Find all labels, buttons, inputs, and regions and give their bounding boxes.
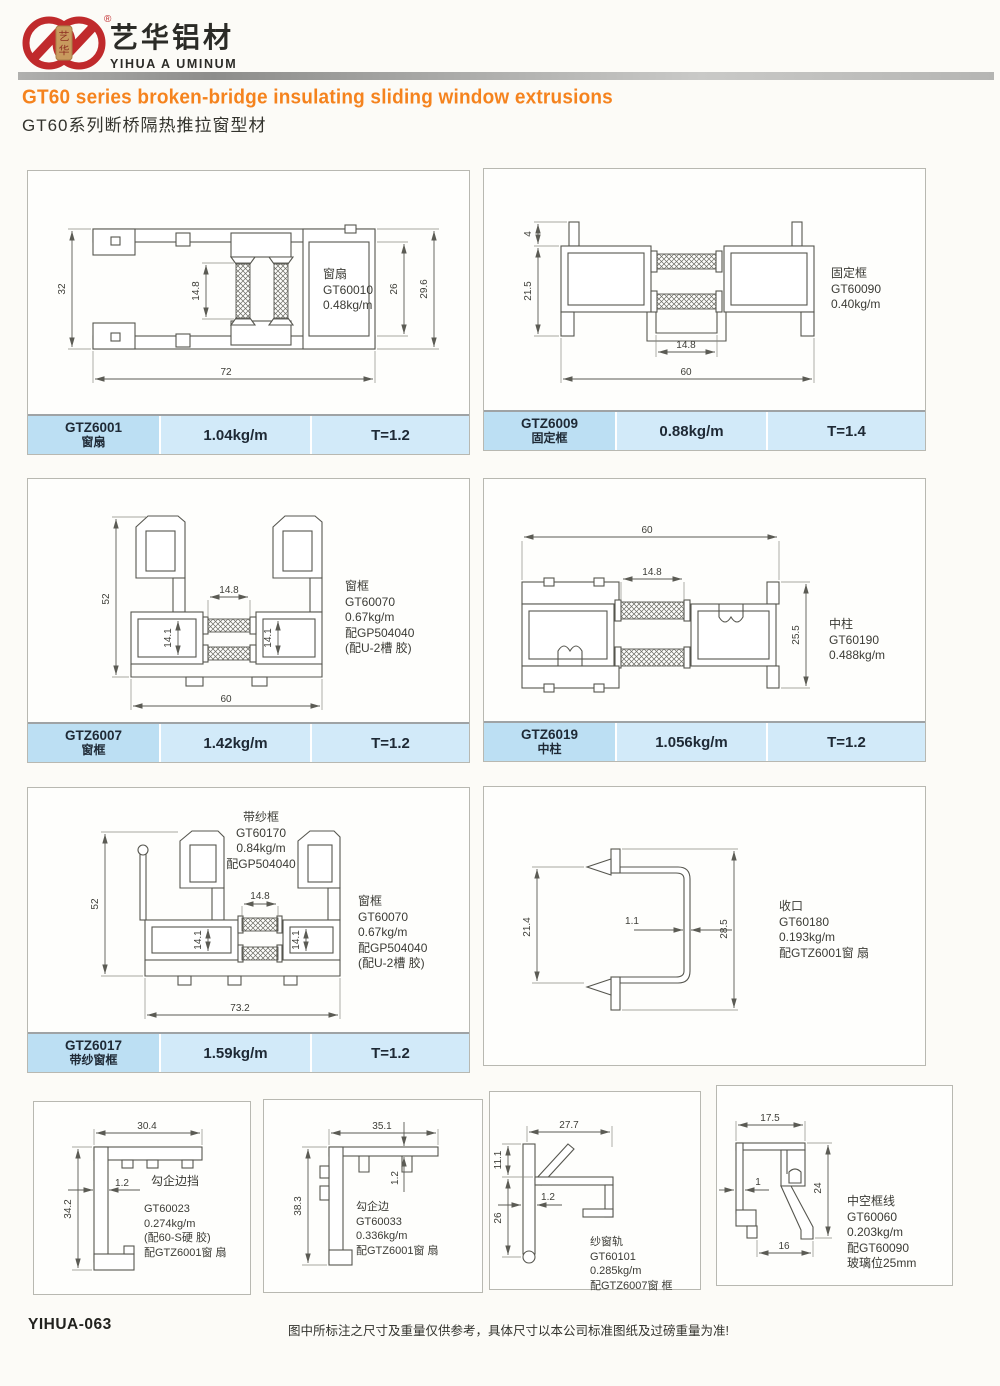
- profile-panel-gtz6009: 4 21.5 14.8 60 固定框GT600900.40kg/m GTZ600…: [483, 168, 926, 451]
- catalog-page: 艺 华 ® 艺华铝材 YIHUA A UMINUM GT60 series br…: [0, 0, 1000, 1386]
- spec-code-cell: GTZ6019中柱: [484, 723, 615, 761]
- spec-thickness-cell: T=1.2: [310, 1034, 469, 1072]
- profile-panel-gtz6007: 52 14.8 14.1 14.1 60 窗框GT600700.67kg/m 配…: [27, 478, 470, 763]
- profile-label: 窗框GT600700.67kg/m 配GP504040(配U-2槽 胶): [345, 579, 414, 657]
- profile-outline: [736, 1143, 813, 1239]
- profile-panel-gtz6001: 32 14.8 26 29.6 72 窗扇GT600100.48kg/m GTZ…: [27, 170, 470, 455]
- dim-upper-left: 11.1: [493, 1150, 504, 1169]
- profile-outline: [522, 578, 779, 692]
- spec-thickness-cell: T=1.2: [766, 723, 925, 761]
- header-divider: [18, 72, 994, 80]
- profile-panel-gt60180: 21.4 1.1 28.5 收口GT60180 0.193kg/m配GTZ600…: [483, 786, 926, 1066]
- dim-outer-right: 29.6: [419, 279, 430, 299]
- spec-thickness-cell: T=1.2: [310, 724, 469, 762]
- profile-drawing-gtz6019: 60 14.8 25.5: [484, 479, 927, 725]
- company-logo-icon: 艺 华 ®: [22, 10, 114, 72]
- dim-cav-right: 14.1: [291, 930, 302, 950]
- profile-drawing-gt60023: 30.4 34.2 1.2: [34, 1102, 250, 1294]
- profile-outline: [561, 222, 814, 341]
- profile-drawing-gt60033: 35.1 1.2 38.3: [264, 1100, 482, 1292]
- spec-code-cell: GTZ6009固定框: [484, 412, 615, 450]
- dim-left: 34.2: [63, 1199, 74, 1219]
- profile-panel-gt60101: 27.7 11.1 1.2 26 纱窗轨GT60101 0.285kg/m配GT…: [489, 1091, 701, 1290]
- dim-left: 21.5: [523, 281, 534, 301]
- profile-label: 勾企边GT60033 0.336kg/m配GTZ6001窗 扇: [356, 1200, 439, 1258]
- spec-bar: GTZ6007窗框 1.42kg/m T=1.2: [28, 722, 469, 762]
- profile-label: 收口GT60180 0.193kg/m配GTZ6001窗 扇: [779, 899, 869, 961]
- profile-label: GT600230.274kg/m (配60-S硬 胶)配GTZ6001窗 扇: [144, 1202, 227, 1260]
- profile-label: 中柱GT601900.488kg/m: [829, 617, 885, 664]
- spec-weight-cell: 1.42kg/m: [159, 724, 310, 762]
- dim-bottom: 60: [220, 694, 232, 705]
- dim-mid: 1: [755, 1177, 761, 1188]
- dim-mid: 1.1: [625, 916, 639, 927]
- dim-right: 25.5: [791, 625, 802, 645]
- dim-bottom: 16: [778, 1241, 790, 1252]
- brand-name-en: YIHUA A UMINUM: [110, 57, 237, 71]
- profile-outline: [587, 849, 690, 1010]
- dim-top: 35.1: [372, 1121, 392, 1132]
- series-title-en: GT60 series broken-bridge insulating sli…: [22, 86, 613, 110]
- profile-drawing-gtz6001: 32 14.8 26 29.6 72: [28, 171, 471, 418]
- profile-panel-gt60060: 17.5 1 24 16 中空框线GT60060 0.203kg/m配GT600…: [716, 1085, 953, 1286]
- profile-label: 固定框GT600900.40kg/m: [831, 266, 881, 313]
- dim-left: 52: [101, 593, 112, 605]
- dim-top: 60: [641, 525, 653, 536]
- dim-left: 38.3: [293, 1196, 304, 1216]
- profile-label: 窗扇GT600100.48kg/m: [323, 267, 373, 314]
- disclaimer-text: 图中所标注之尺寸及重量仅供参考，具体尺寸以本公司标准图纸及过磅重量为准!: [288, 1320, 729, 1339]
- dim-bottom: 60: [680, 367, 692, 378]
- dim-top: 17.5: [760, 1113, 780, 1124]
- spec-thickness-cell: T=1.2: [310, 416, 469, 454]
- profile-label: 中空框线GT60060 0.203kg/m配GT60090 玻璃位25mm: [847, 1194, 916, 1272]
- profile-top-label: 带纱框GT60170 0.84kg/m配GP504040: [201, 810, 321, 872]
- brand-block: 艺华铝材 YIHUA A UMINUM: [110, 16, 237, 71]
- dim-top: 30.4: [137, 1121, 157, 1132]
- profile-panel-gt60023: 30.4 34.2 1.2 勾企边挡 GT600230.274kg/m (配60…: [33, 1101, 251, 1295]
- spec-thickness-cell: T=1.4: [766, 412, 925, 450]
- brand-name-cn: 艺华铝材: [110, 16, 237, 56]
- dim-mid: 14.8: [676, 340, 696, 351]
- dim-inner-right: 26: [389, 283, 400, 295]
- spec-code-cell: GTZ6007窗框: [28, 724, 159, 762]
- profile-panel-gtz6017: 52 14.8 14.1 14.1 73.2 带纱框GT60170 0.84kg…: [27, 787, 470, 1073]
- profile-outline: [131, 516, 322, 686]
- dim-left: 21.4: [522, 917, 533, 937]
- dim-mid: 14.8: [219, 585, 239, 596]
- dim-right: 24: [813, 1182, 824, 1194]
- logo-seal-top: 艺: [59, 30, 70, 43]
- profile-panel-gtz6019: 60 14.8 25.5 中柱GT601900.488kg/m GTZ6019中…: [483, 478, 926, 762]
- dim-left: 32: [57, 283, 68, 295]
- dim-mid: 14.8: [191, 281, 202, 301]
- profile-label: 窗框GT600700.67kg/m 配GP504040(配U-2槽 胶): [358, 894, 427, 972]
- dim-lower-left: 26: [493, 1212, 504, 1224]
- spec-bar: GTZ6017带纱窗框 1.59kg/m T=1.2: [28, 1032, 469, 1072]
- dim-top: 4: [523, 231, 534, 237]
- spec-bar: GTZ6001窗扇 1.04kg/m T=1.2: [28, 414, 469, 454]
- dim-cav-left: 14.1: [163, 628, 174, 648]
- dim-top: 27.7: [559, 1120, 579, 1131]
- spec-code-cell: GTZ6001窗扇: [28, 416, 159, 454]
- profile-drawing-gt60060: 17.5 1 24 16: [717, 1086, 952, 1285]
- dim-mid: 14.8: [642, 567, 662, 578]
- spec-code-cell: GTZ6017带纱窗框: [28, 1034, 159, 1072]
- dim-left: 52: [90, 898, 101, 910]
- dim-mid: 1.2: [390, 1171, 401, 1185]
- spec-bar: GTZ6009固定框 0.88kg/m T=1.4: [484, 410, 925, 450]
- spec-weight-cell: 1.04kg/m: [159, 416, 310, 454]
- spec-weight-cell: 1.056kg/m: [615, 723, 766, 761]
- dim-mid: 14.8: [250, 891, 270, 902]
- logo-seal-bottom: 华: [59, 43, 70, 57]
- profile-label: 纱窗轨GT60101 0.285kg/m配GTZ6007窗 框: [590, 1235, 673, 1293]
- dim-cav-left: 14.1: [193, 930, 204, 950]
- profile-panel-gt60033: 35.1 1.2 38.3 勾企边GT60033 0.336kg/m配GTZ60…: [263, 1099, 483, 1293]
- dim-right: 28.5: [719, 919, 730, 939]
- spec-weight-cell: 1.59kg/m: [159, 1034, 310, 1072]
- page-number: YIHUA-063: [28, 1316, 112, 1334]
- dim-mid: 1.2: [541, 1192, 555, 1203]
- profile-title: 勾企边挡: [151, 1174, 199, 1190]
- spec-weight-cell: 0.88kg/m: [615, 412, 766, 450]
- spec-bar: GTZ6019中柱 1.056kg/m T=1.2: [484, 721, 925, 761]
- dim-bottom: 73.2: [230, 1003, 250, 1014]
- dim-mid: 1.2: [115, 1178, 129, 1189]
- dim-cav-right: 14.1: [263, 628, 274, 648]
- series-title-cn: GT60系列断桥隔热推拉窗型材: [22, 111, 267, 136]
- dim-bottom: 72: [220, 367, 232, 378]
